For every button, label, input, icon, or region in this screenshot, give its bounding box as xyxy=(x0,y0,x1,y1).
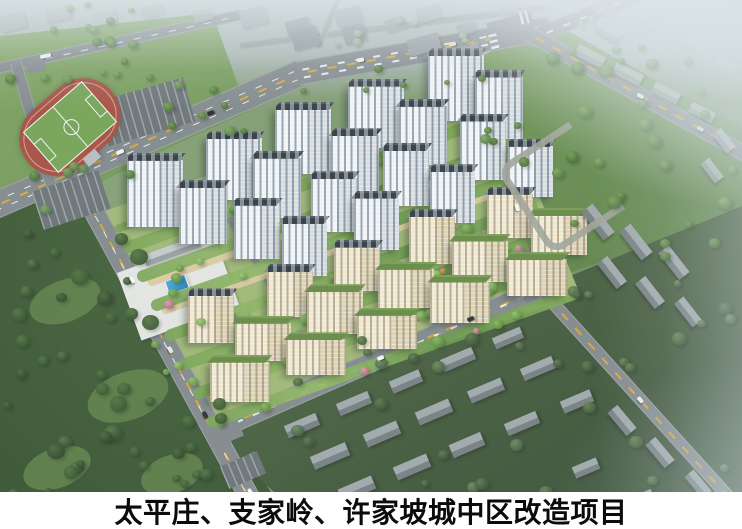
apartment-building xyxy=(179,187,227,244)
tree xyxy=(163,369,170,375)
tree xyxy=(363,87,369,92)
tree xyxy=(20,286,33,298)
tree xyxy=(718,197,732,209)
tree xyxy=(5,74,16,84)
tree xyxy=(638,99,648,108)
tree xyxy=(186,443,195,451)
building-roof xyxy=(457,114,509,122)
tree xyxy=(574,9,579,14)
building-roof xyxy=(427,164,478,172)
building-roof xyxy=(176,180,230,188)
tree xyxy=(121,58,129,65)
building-roof xyxy=(250,151,304,159)
tree xyxy=(335,43,340,48)
tree xyxy=(432,336,444,346)
tree xyxy=(209,86,218,94)
tree xyxy=(76,460,85,468)
tree xyxy=(240,128,247,134)
tree xyxy=(514,122,521,128)
tree xyxy=(142,315,159,330)
tree xyxy=(638,45,645,51)
tree xyxy=(40,74,49,82)
tree xyxy=(411,20,418,26)
building-roof xyxy=(207,355,273,363)
tree xyxy=(172,475,180,482)
tree xyxy=(47,443,65,459)
building-roof xyxy=(406,209,458,217)
tree xyxy=(647,135,662,148)
tree xyxy=(612,47,620,54)
building-roof xyxy=(124,153,186,161)
tree xyxy=(50,248,59,256)
tree xyxy=(646,59,659,70)
building-roof xyxy=(308,171,360,179)
building-roof xyxy=(283,332,349,340)
tree xyxy=(672,332,686,344)
tree xyxy=(432,361,446,373)
tree xyxy=(130,447,139,455)
building-roof xyxy=(375,262,437,270)
city-block xyxy=(636,7,667,33)
tree xyxy=(719,303,732,314)
tree xyxy=(684,57,693,65)
apartment-building xyxy=(188,295,234,343)
building-roof xyxy=(396,99,450,107)
tree xyxy=(106,17,115,25)
tree xyxy=(573,291,582,299)
tree xyxy=(629,436,642,448)
tree xyxy=(128,8,134,13)
tree xyxy=(647,476,657,485)
tree xyxy=(146,74,155,82)
tree xyxy=(16,335,29,346)
tree xyxy=(725,314,736,323)
tree xyxy=(493,320,503,329)
tree xyxy=(89,26,98,34)
building-roof xyxy=(231,198,283,206)
tree xyxy=(3,402,12,410)
tree xyxy=(196,318,206,327)
tree xyxy=(583,402,596,413)
tree xyxy=(519,157,530,166)
tree xyxy=(552,168,564,178)
tree xyxy=(400,82,407,88)
tree xyxy=(515,245,522,251)
tree xyxy=(196,258,203,264)
old-town-building xyxy=(389,369,424,393)
building-roof xyxy=(504,252,570,260)
old-town-building xyxy=(520,355,556,380)
tree xyxy=(145,397,155,406)
old-town-building xyxy=(597,255,627,288)
city-block xyxy=(713,56,738,77)
old-town-building xyxy=(449,432,486,458)
project-caption: 太平庄、支家岭、许家坡城中区改造项目 xyxy=(114,491,627,529)
apartment-building xyxy=(430,282,490,323)
apartment-building xyxy=(334,247,380,291)
tree xyxy=(12,308,27,321)
tree xyxy=(354,30,362,37)
apartment-building xyxy=(127,160,183,227)
building-roof xyxy=(264,264,316,272)
building-roof xyxy=(354,308,420,316)
building-roof xyxy=(449,234,511,242)
old-town-building xyxy=(310,442,350,470)
tree xyxy=(125,308,139,320)
tree xyxy=(151,341,160,349)
tree xyxy=(728,166,737,174)
tree xyxy=(96,383,110,395)
tree xyxy=(200,469,213,480)
tree xyxy=(440,268,446,273)
tree xyxy=(57,351,69,361)
tree xyxy=(168,122,177,130)
tree xyxy=(578,106,591,118)
tree xyxy=(139,461,149,470)
old-town-building xyxy=(467,377,505,403)
tree xyxy=(720,464,729,472)
tree xyxy=(163,102,174,112)
apartment-building xyxy=(307,291,363,334)
tree xyxy=(374,398,388,411)
tree xyxy=(659,160,672,171)
tree xyxy=(23,230,32,238)
building-roof xyxy=(427,275,493,283)
city-block xyxy=(0,11,27,33)
old-town-building xyxy=(363,421,402,448)
tree xyxy=(553,359,563,368)
apartment-building xyxy=(409,216,455,264)
old-town-building xyxy=(415,399,454,426)
tree xyxy=(174,81,184,89)
old-town-building xyxy=(619,224,652,261)
tree xyxy=(421,480,429,487)
old-town-building xyxy=(700,157,723,183)
tree xyxy=(110,396,127,411)
tree xyxy=(353,38,362,46)
city-block xyxy=(140,2,164,19)
tree xyxy=(99,431,113,443)
tree xyxy=(164,300,174,308)
tree xyxy=(639,119,652,130)
tree xyxy=(92,38,101,46)
city-block xyxy=(384,15,407,33)
building-roof xyxy=(185,288,237,296)
tree xyxy=(29,171,40,181)
tree xyxy=(71,269,89,285)
tree xyxy=(475,478,489,490)
tree xyxy=(484,127,492,134)
tree xyxy=(584,291,593,299)
tree xyxy=(607,196,622,209)
tree xyxy=(697,88,705,95)
tree xyxy=(598,64,613,77)
city-block xyxy=(238,5,268,29)
building-roof xyxy=(232,316,294,324)
tree xyxy=(594,158,604,167)
old-town-building xyxy=(504,410,540,435)
screenshot-root: 太平庄、支家岭、许家坡城中区改造项目 xyxy=(0,0,742,529)
building-roof xyxy=(272,102,334,110)
old-town-building xyxy=(658,245,689,280)
aerial-rendering xyxy=(0,0,742,494)
tree xyxy=(239,273,246,279)
scene-objects xyxy=(0,0,742,494)
tree xyxy=(56,293,67,303)
tree xyxy=(198,112,206,119)
tree xyxy=(438,450,450,460)
tree xyxy=(546,52,560,64)
apartment-building xyxy=(378,269,434,308)
tree xyxy=(113,71,121,78)
tree xyxy=(674,280,681,286)
tree xyxy=(97,291,113,305)
caption-bar: 太平庄、支家岭、许家坡城中区改造项目 xyxy=(0,492,742,529)
building-roof xyxy=(425,48,487,56)
tree xyxy=(66,5,74,12)
tree xyxy=(300,88,307,94)
building-roof xyxy=(304,284,366,292)
tree xyxy=(213,398,226,409)
tree xyxy=(587,16,594,22)
city-block xyxy=(683,31,710,53)
tree xyxy=(408,353,419,362)
tree xyxy=(96,370,106,379)
tree xyxy=(709,238,720,248)
apartment-building xyxy=(234,205,280,259)
tree xyxy=(182,416,195,427)
tree xyxy=(16,368,28,378)
tree xyxy=(117,383,131,395)
tree xyxy=(180,480,189,488)
tree xyxy=(130,249,148,265)
old-town-building xyxy=(393,454,432,481)
old-town-building xyxy=(336,390,372,415)
tree xyxy=(172,448,185,459)
tree xyxy=(128,40,138,49)
tree xyxy=(100,70,107,76)
apartment-building xyxy=(210,362,270,402)
tree xyxy=(63,168,73,176)
tree xyxy=(171,273,182,283)
tree xyxy=(697,320,706,327)
apartment-building xyxy=(507,259,567,296)
building-roof xyxy=(380,143,432,151)
tree xyxy=(566,151,580,163)
old-town-building xyxy=(594,21,622,43)
road-junction xyxy=(26,56,47,73)
tree xyxy=(64,466,78,478)
tree xyxy=(168,289,178,298)
tree xyxy=(360,367,369,375)
tree xyxy=(291,425,304,437)
tree xyxy=(215,413,227,423)
tree xyxy=(578,21,585,27)
tree xyxy=(303,437,314,447)
tree xyxy=(50,26,58,33)
building-roof xyxy=(328,128,382,136)
tree xyxy=(63,75,72,83)
old-town-building xyxy=(440,346,476,371)
building-roof xyxy=(345,79,407,87)
tree xyxy=(625,363,636,372)
tree xyxy=(581,361,593,372)
tree xyxy=(188,377,198,386)
tree xyxy=(660,252,670,261)
building-roof xyxy=(331,240,383,248)
building-roof xyxy=(279,216,330,224)
tree xyxy=(27,259,39,269)
tree xyxy=(84,2,91,8)
apartment-building xyxy=(357,315,417,349)
tree xyxy=(38,356,48,365)
tree xyxy=(685,221,693,228)
old-town-building xyxy=(572,457,601,478)
tree xyxy=(105,313,115,322)
tree xyxy=(374,65,382,72)
building-roof xyxy=(351,191,402,199)
road-east-road-lower xyxy=(535,284,742,494)
old-town-building xyxy=(635,275,665,308)
apartment-building xyxy=(286,339,346,375)
tree xyxy=(510,439,523,451)
tree xyxy=(465,333,479,346)
old-town-building xyxy=(607,404,636,435)
tree xyxy=(260,403,271,412)
tree xyxy=(618,58,625,64)
tree xyxy=(515,342,524,350)
